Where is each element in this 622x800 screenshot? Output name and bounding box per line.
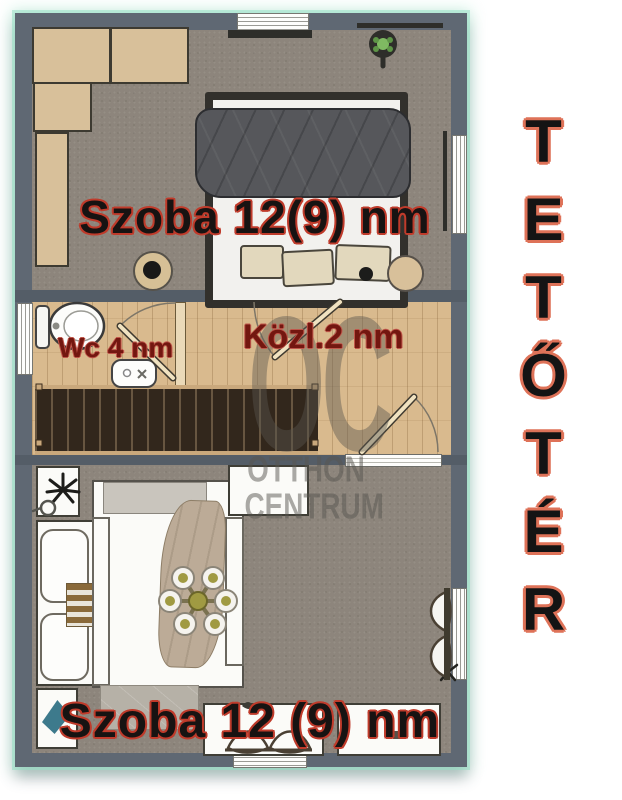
bed-side-board-right: [225, 517, 244, 666]
chaise-striped-blanket: [66, 583, 94, 627]
pillow-1: [240, 245, 284, 279]
bottom-room-label: Szoba 12 (9) nm: [35, 694, 465, 749]
wardrobe-1: [32, 27, 111, 84]
window-wc: [17, 303, 33, 375]
cabinet-small: [33, 82, 92, 132]
wardrobe-2: [110, 27, 189, 84]
shelf-2: [357, 23, 443, 28]
wc-label: Wc 4 nm: [58, 332, 173, 364]
plant-table: [36, 466, 80, 517]
bed-side-board-left: [92, 517, 110, 686]
round-rug-center: [143, 261, 161, 279]
watermark-line1: OTTHON: [245, 450, 368, 491]
side-title: TETŐTÉR: [503, 108, 583, 654]
hallway-label: Közl.2 nm: [243, 318, 404, 357]
shelf-1: [228, 30, 312, 38]
window-top-wall: [237, 13, 309, 31]
wc-divider-wall: [175, 302, 186, 390]
stool: [387, 255, 424, 292]
watermark-line2: CENTRUM: [245, 487, 368, 528]
floorplan-outline: [15, 13, 467, 767]
floorplan-image: OC OTTHON CENTRUM Szoba 12(9) nm Wc 4 nm…: [0, 0, 622, 800]
window-bottom-room-right: [452, 588, 467, 680]
top-room-label: Szoba 12(9) nm: [60, 190, 450, 244]
window-top-room-right: [452, 135, 467, 234]
bed-top-blanket: [195, 108, 411, 198]
